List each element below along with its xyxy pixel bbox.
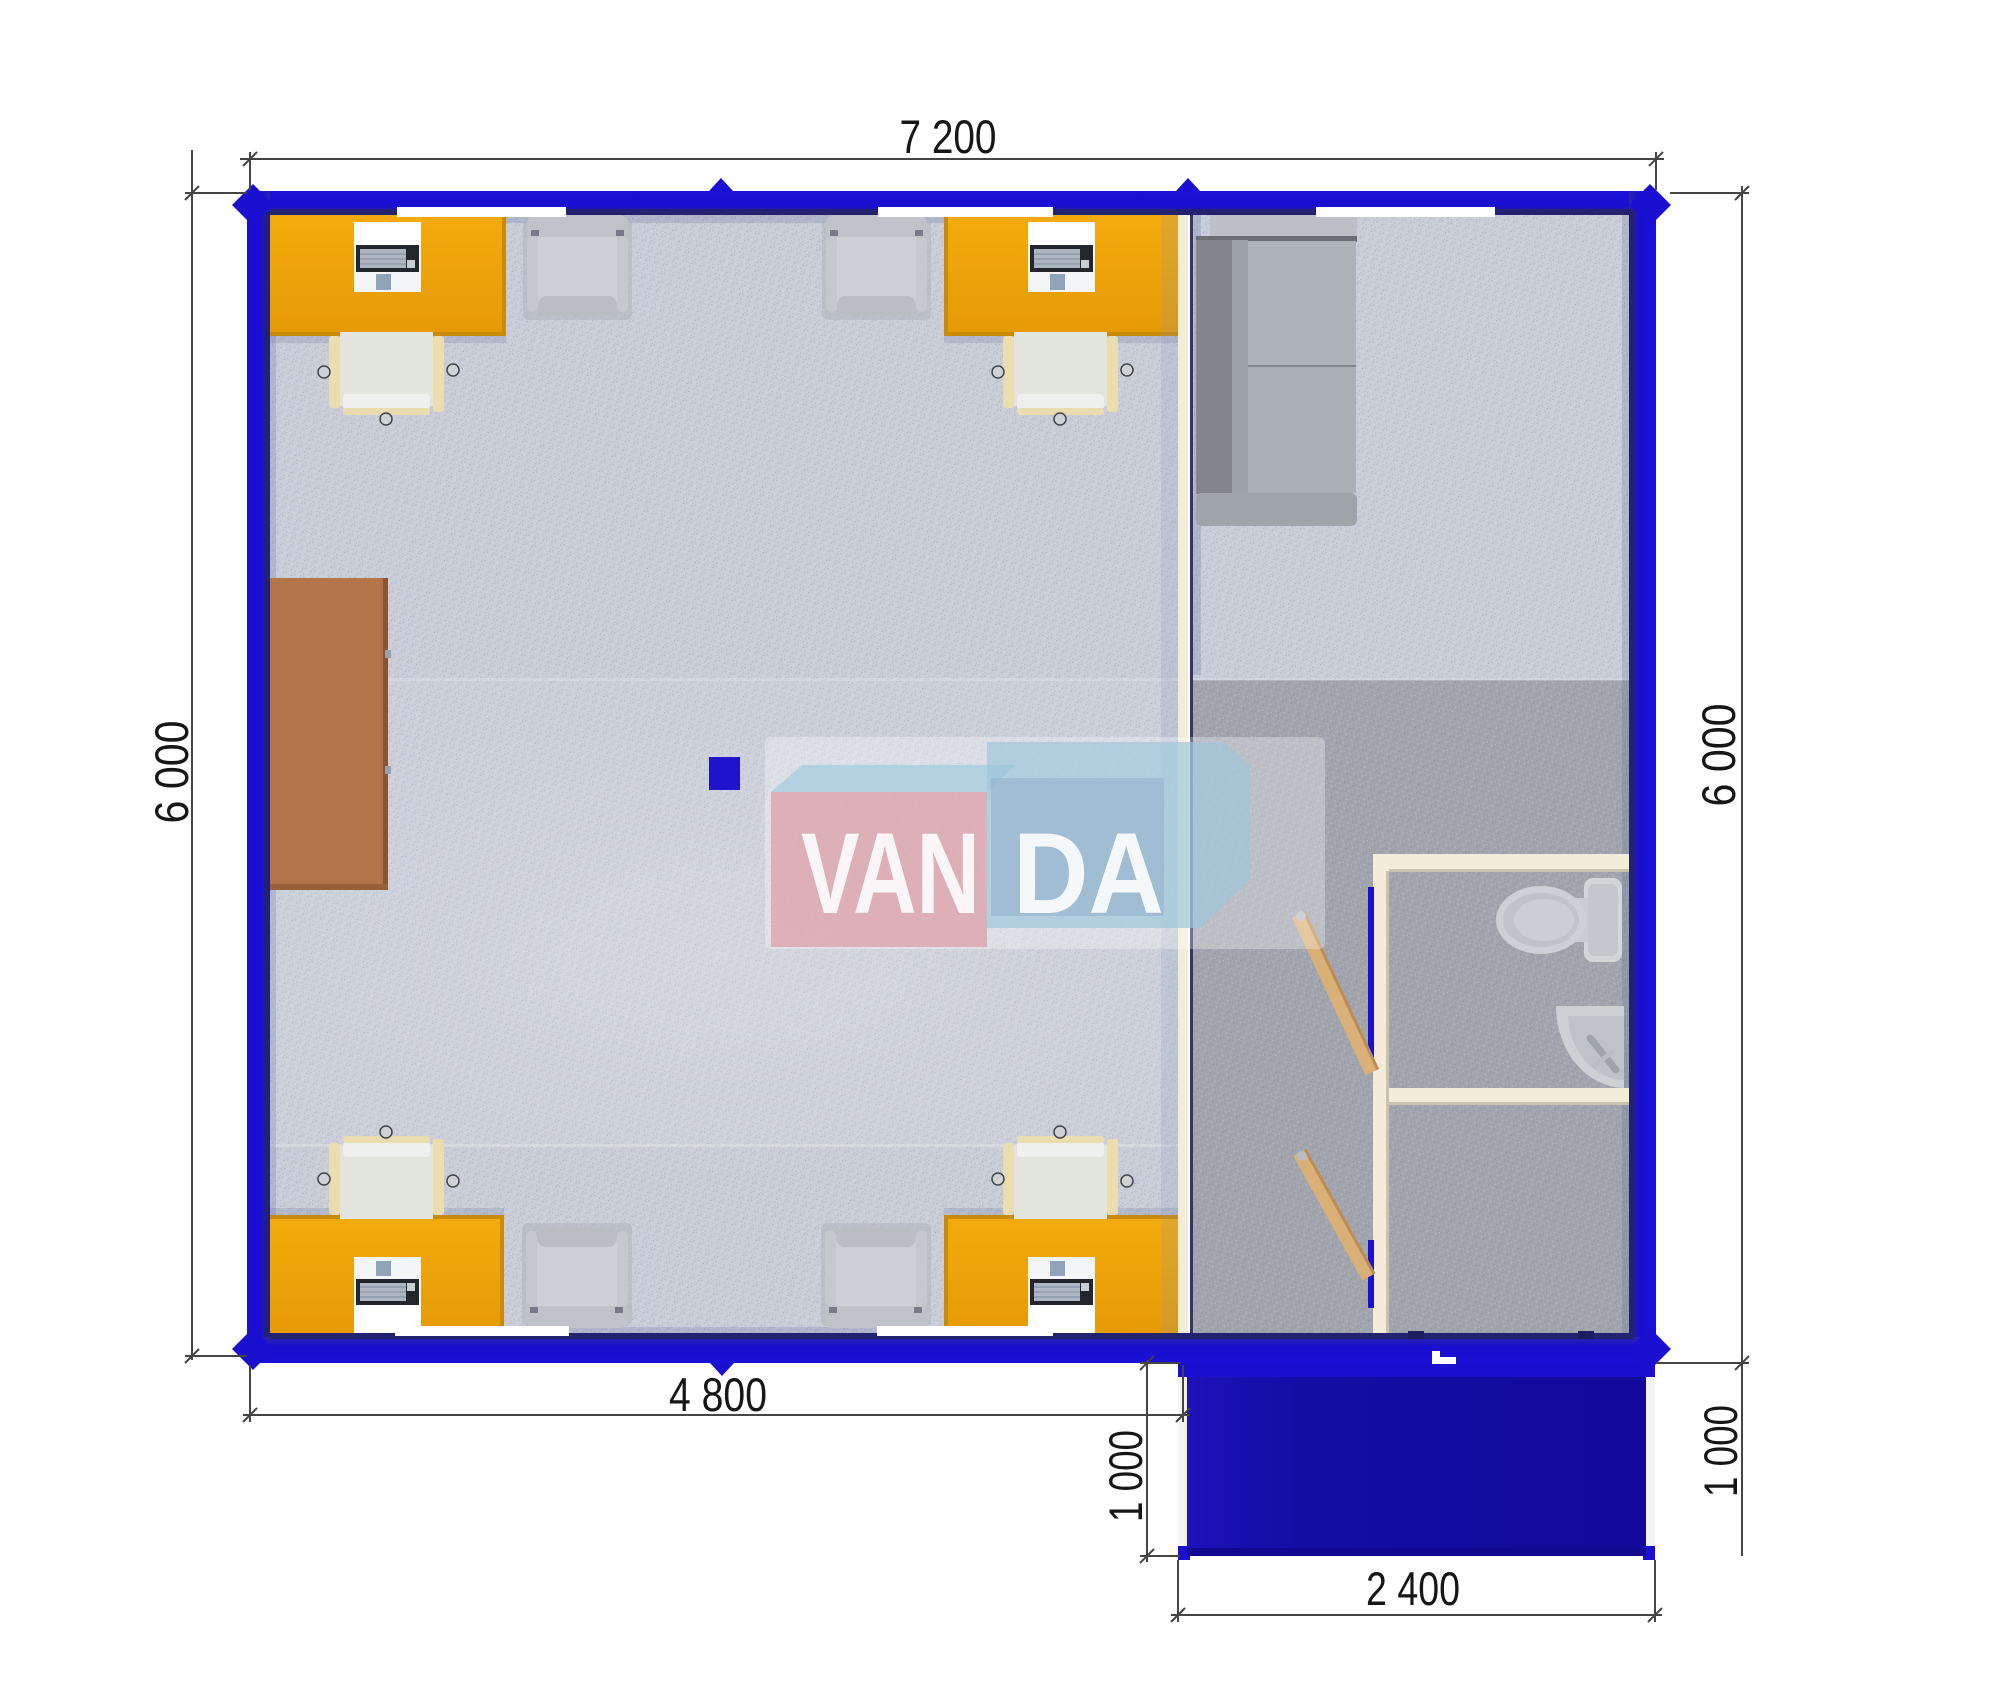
svg-text:VAN: VAN: [801, 810, 980, 938]
svg-text:6 000: 6 000: [1692, 704, 1745, 807]
svg-text:4 800: 4 800: [669, 1368, 767, 1421]
svg-text:DA: DA: [1013, 810, 1164, 938]
svg-text:1 000: 1 000: [1099, 1430, 1152, 1522]
svg-text:6 000: 6 000: [145, 721, 198, 824]
svg-text:7 200: 7 200: [900, 110, 997, 163]
svg-text:2 400: 2 400: [1366, 1562, 1460, 1615]
svg-text:1 000: 1 000: [1694, 1405, 1747, 1497]
